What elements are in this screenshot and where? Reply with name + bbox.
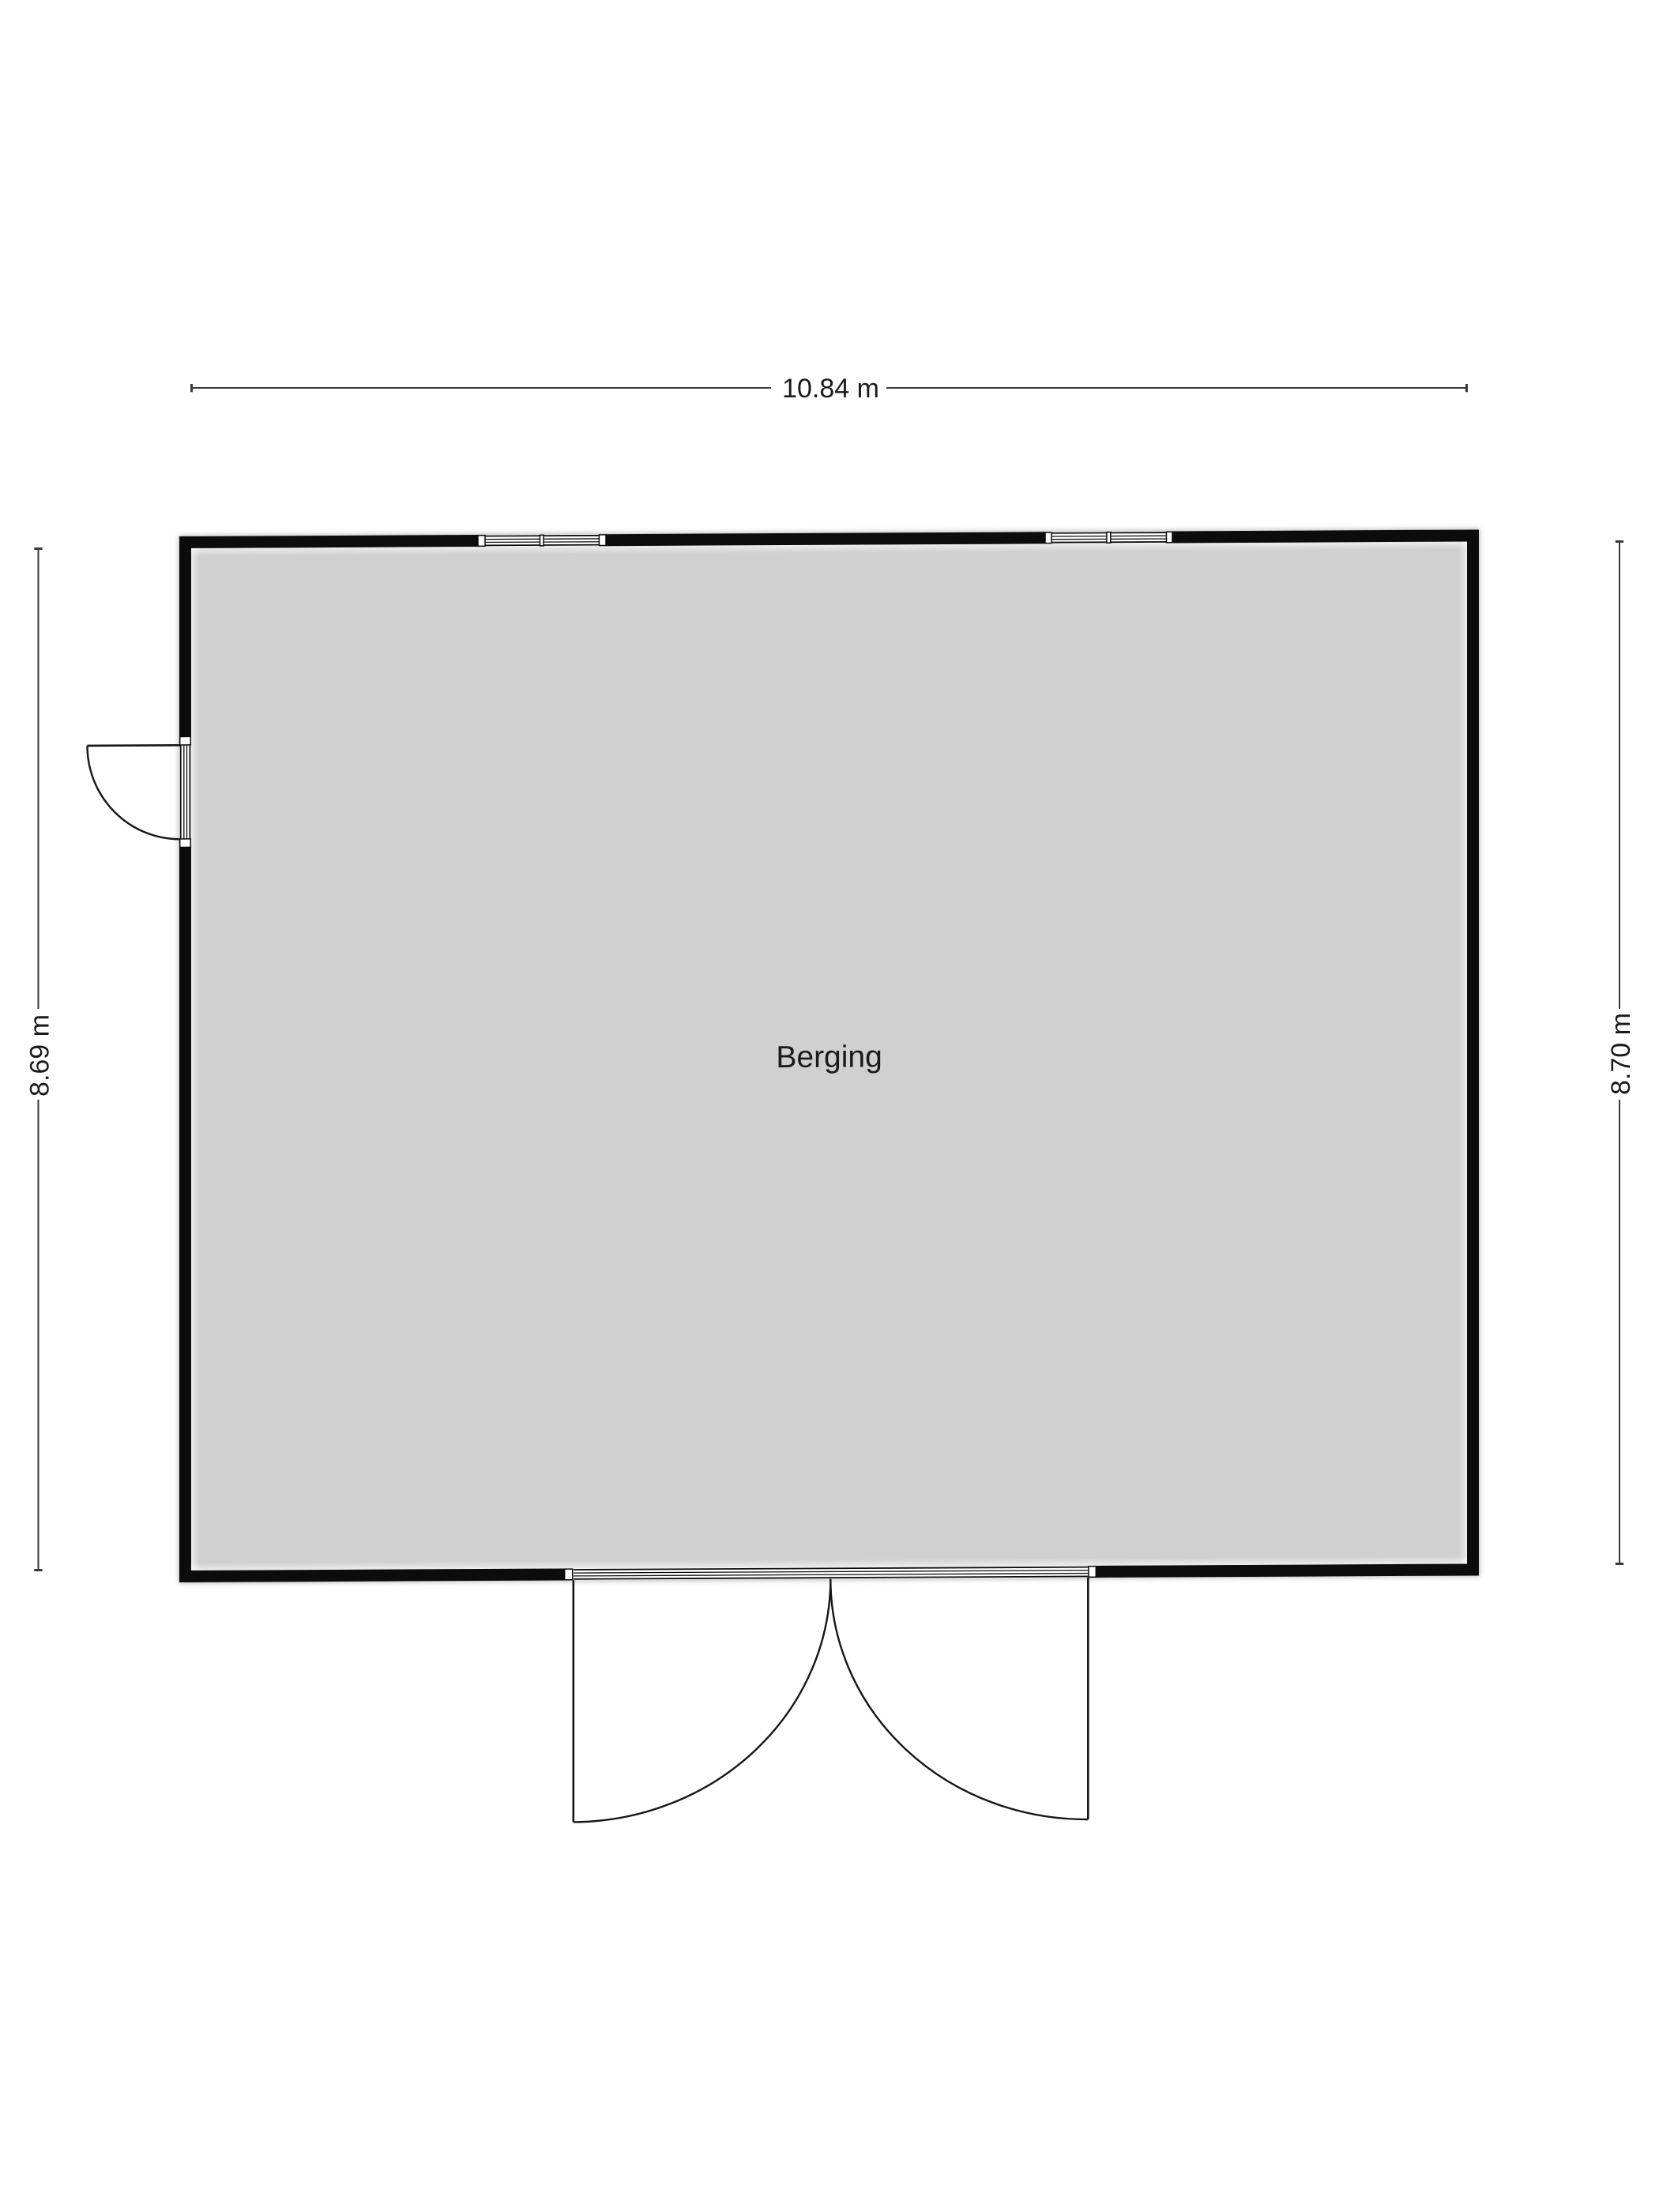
svg-text:8.69 m: 8.69 m [25,1014,55,1097]
svg-text:8.70 m: 8.70 m [1606,1013,1636,1095]
svg-text:10.84 m: 10.84 m [782,374,879,404]
svg-text:Berging: Berging [776,1040,882,1074]
